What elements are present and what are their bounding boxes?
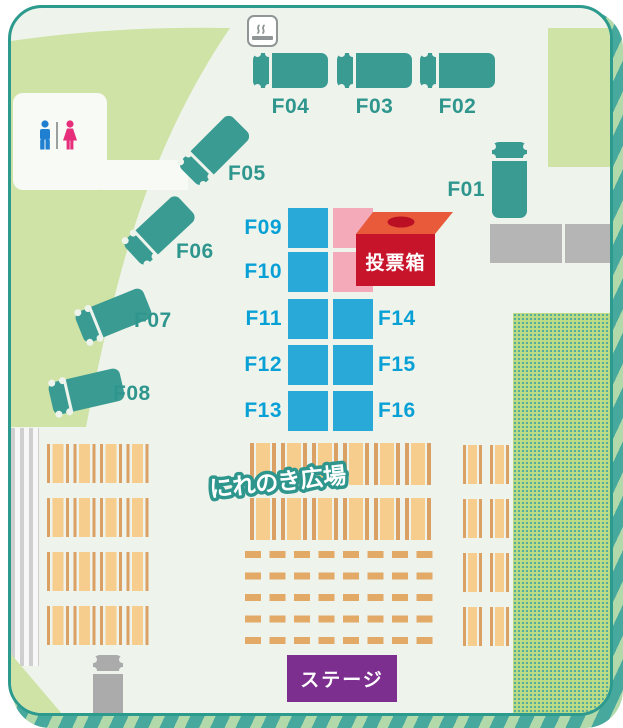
stage: ステージ	[287, 655, 397, 702]
voting-box-label: 投票箱	[356, 246, 435, 276]
svg-text:にれのき広場: にれのき広場	[208, 462, 347, 502]
booth-f13	[288, 391, 328, 431]
lawn-bottom-left-wedge	[11, 648, 63, 715]
smoking-area-icon	[247, 15, 278, 47]
truck-label-f03: F03	[337, 95, 412, 119]
walkway-corridor	[100, 160, 188, 190]
booth-f15	[333, 345, 373, 385]
booth-label-f09: F09	[226, 216, 282, 240]
booth-label-f14: F14	[378, 307, 434, 331]
event-map: F04 F03 F02 F01 F05 F06 F07 F08	[0, 0, 623, 728]
truck-label-f08: F08	[113, 382, 173, 406]
dotted-lawn-area	[513, 313, 610, 716]
men-restroom-icon	[37, 120, 53, 150]
booth-label-f13: F13	[226, 399, 282, 423]
booth-f09	[288, 208, 328, 248]
seat-mat-grid	[245, 551, 433, 644]
vehicle-gray	[93, 655, 123, 716]
booth-f16	[333, 391, 373, 431]
food-truck-f01	[492, 142, 527, 218]
bench-block-right	[463, 445, 509, 646]
table-area-2	[565, 224, 610, 263]
food-truck-f04	[253, 53, 328, 88]
lawn-top-right	[548, 28, 610, 167]
booth-f11	[288, 299, 328, 339]
women-restroom-icon	[61, 120, 79, 150]
booth-f10	[288, 252, 328, 292]
stage-label: ステージ	[300, 665, 384, 692]
plaza-name: にれのき広場	[183, 458, 373, 508]
truck-label-f04: F04	[253, 95, 328, 119]
map-panel: F04 F03 F02 F01 F05 F06 F07 F08	[8, 5, 613, 716]
truck-label-f07: F07	[134, 309, 194, 333]
restroom-divider	[56, 122, 58, 149]
truck-label-f05: F05	[228, 162, 288, 186]
booth-label-f11: F11	[226, 307, 282, 331]
table-area-1	[490, 224, 562, 263]
lawn-top-left	[11, 8, 251, 428]
food-truck-f03	[337, 53, 412, 88]
booth-f12	[288, 345, 328, 385]
booth-label-f12: F12	[226, 353, 282, 377]
truck-label-f02: F02	[420, 95, 495, 119]
booth-label-f10: F10	[226, 260, 282, 284]
booth-label-f16: F16	[378, 399, 434, 423]
restroom-building	[13, 93, 107, 190]
booth-label-f15: F15	[378, 353, 434, 377]
bench-block-left	[47, 444, 149, 645]
booth-f14	[333, 299, 373, 339]
food-truck-f02	[420, 53, 495, 88]
stairs-structure	[11, 428, 39, 666]
